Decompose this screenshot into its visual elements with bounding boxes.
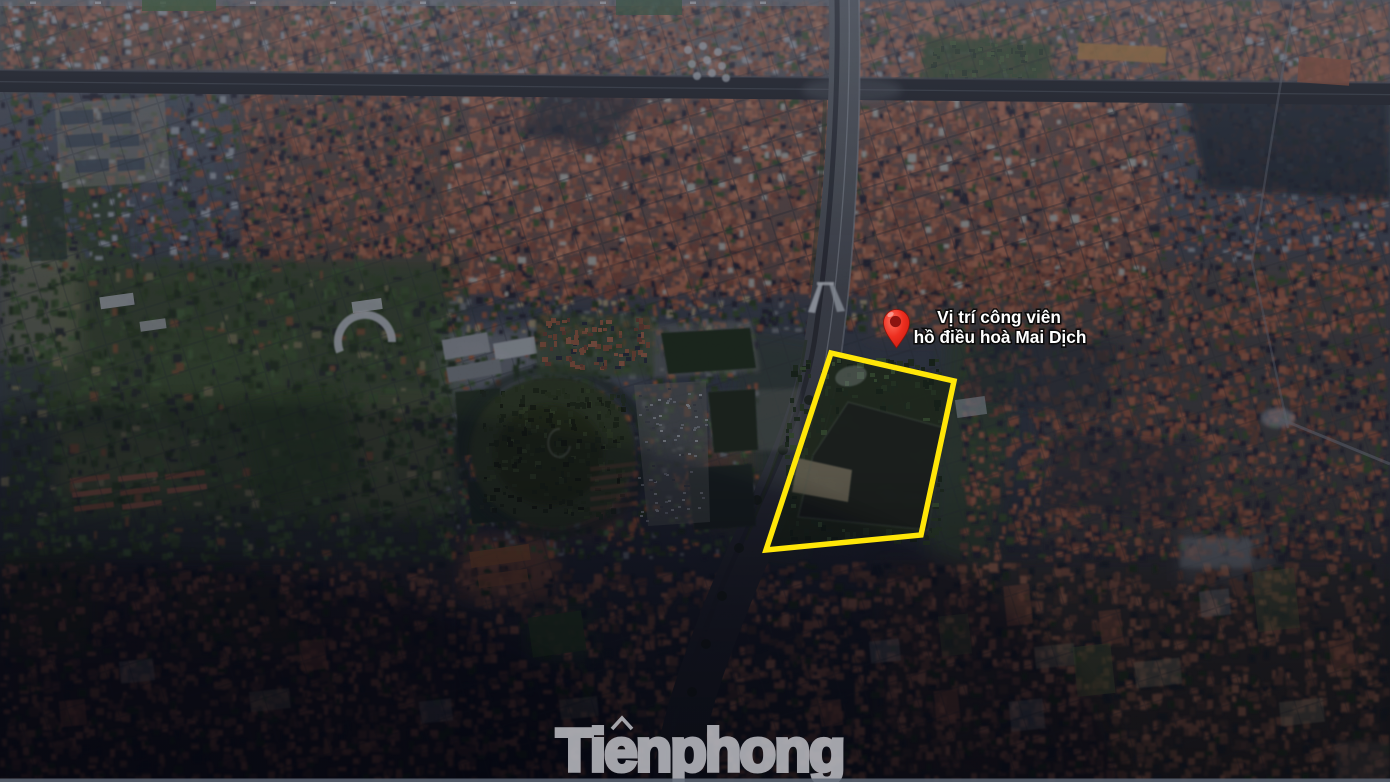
svg-text:Vị trí công viên: Vị trí công viên [937,307,1061,327]
svg-text:hồ điều hoà Mai Dịch: hồ điều hoà Mai Dịch [914,327,1087,347]
svg-text:Tienphong: Tienphong [556,717,844,782]
